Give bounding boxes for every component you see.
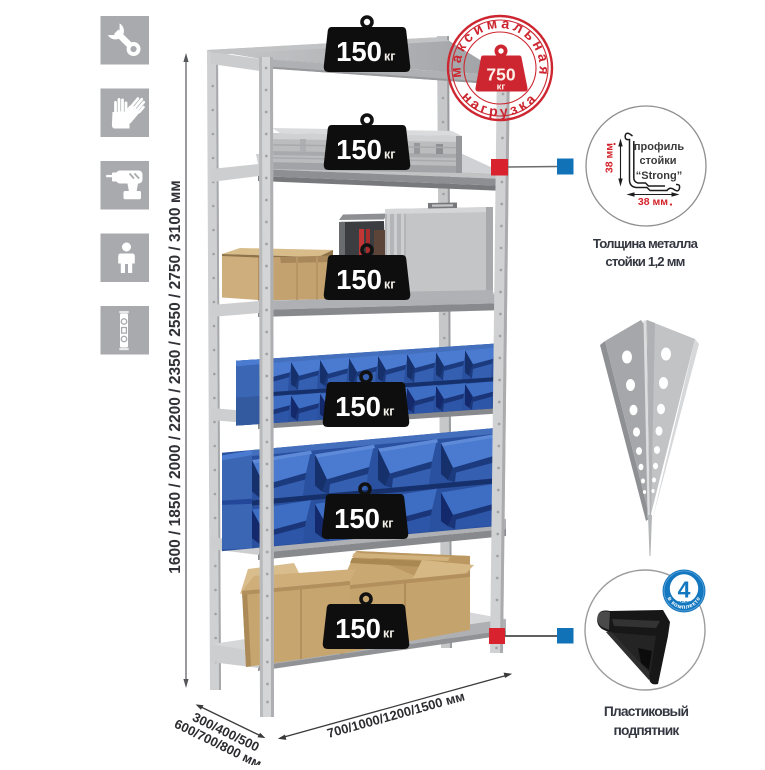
svg-text:Пластиковый: Пластиковый bbox=[604, 704, 689, 719]
svg-text:Толщина металла: Толщина металла bbox=[593, 236, 699, 251]
svg-text:1600 / 1850 / 2000 / 2200 / 23: 1600 / 1850 / 2000 / 2200 / 2350 / 2550 … bbox=[167, 180, 184, 574]
svg-text:профиль: профиль bbox=[634, 141, 684, 153]
svg-text:38 мм: 38 мм bbox=[638, 196, 668, 208]
svg-text:стойки: стойки bbox=[639, 155, 676, 167]
svg-text:подпятник: подпятник bbox=[614, 723, 680, 738]
svg-text:4: 4 bbox=[678, 577, 691, 603]
svg-text:“Strong”: “Strong” bbox=[636, 170, 682, 182]
svg-text:стойки 1,2 мм: стойки 1,2 мм bbox=[605, 254, 684, 269]
svg-text:38 мм: 38 мм bbox=[604, 143, 616, 173]
svg-text:кг: кг bbox=[497, 82, 506, 93]
